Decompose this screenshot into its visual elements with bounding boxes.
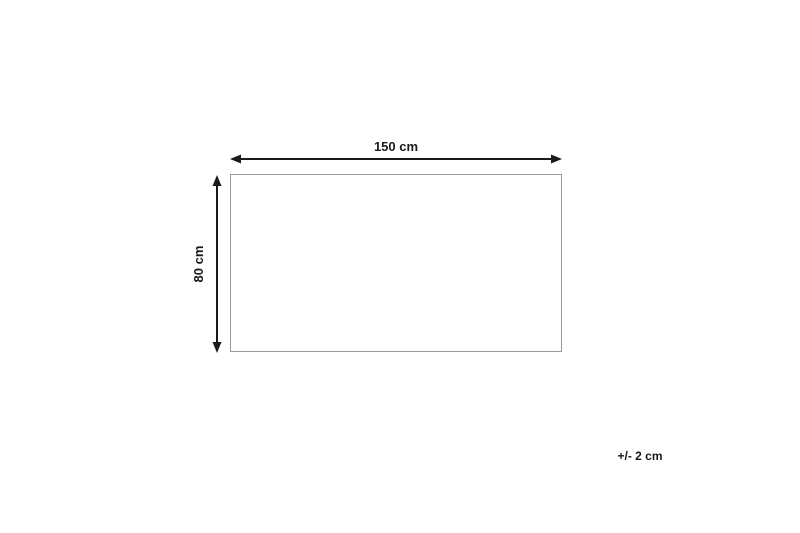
tolerance-label: +/- 2 cm [600, 448, 680, 464]
width-dimension-label: 150 cm [230, 139, 562, 155]
vertical-dimension-arrow-icon [213, 175, 222, 353]
product-outline-rectangle [230, 174, 562, 352]
dimension-diagram: 150 cm 80 cm +/- 2 cm [0, 0, 800, 533]
horizontal-dimension-arrow-icon [230, 155, 562, 164]
height-dimension-label: 80 cm [191, 241, 211, 287]
